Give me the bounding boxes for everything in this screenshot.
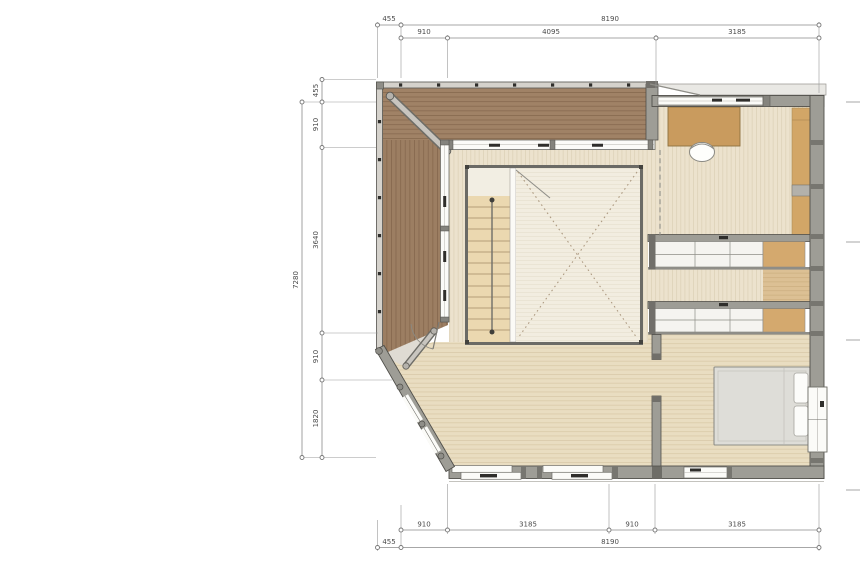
railing-post: [639, 340, 643, 344]
window-sash: [452, 466, 512, 473]
balcony-wall-top: [448, 140, 655, 150]
wall-post: [441, 317, 450, 322]
floor-plan-page: 455 8190 910 4095 3185 7280 455 910 3640…: [0, 0, 860, 573]
window-tick: [690, 469, 701, 472]
handrail-post: [490, 198, 495, 203]
partition-end-post: [652, 396, 661, 402]
deck-end-wall: [646, 84, 658, 140]
closet-corridor-floor-right: [763, 270, 810, 302]
window-tick: [820, 401, 824, 407]
dimension-label: 4095: [542, 28, 560, 36]
study-closet-block: [792, 185, 810, 196]
dimension-label: 910: [417, 521, 430, 529]
wall-tick: [719, 303, 728, 306]
railing-corner-post: [377, 82, 384, 89]
wall-post: [550, 140, 555, 150]
pillow: [794, 406, 808, 436]
dimensions-bottom: 910 3185 910 3185 455 8190: [376, 484, 822, 551]
desk: [668, 107, 740, 146]
dimension-label: 8190: [601, 15, 619, 23]
chair: [690, 143, 715, 162]
study-wall-closet: [792, 108, 810, 238]
closet-lower: [648, 302, 812, 335]
dimension-label: 8190: [601, 538, 619, 546]
dimension-label: 455: [382, 538, 395, 546]
pillow: [794, 373, 808, 403]
wall-joint: [438, 453, 444, 459]
stair-landing: [468, 168, 513, 196]
partition-end-post: [652, 354, 661, 360]
window-sash: [543, 466, 603, 473]
dimension-label: 455: [312, 84, 320, 97]
closet-wall: [648, 267, 812, 270]
railing-post: [465, 165, 469, 169]
closet-end-post: [649, 235, 656, 270]
closet-upper: [648, 235, 812, 270]
stairwell-inner-wall: [510, 168, 516, 342]
partition-wall: [652, 396, 661, 466]
bottom-wall: [449, 466, 824, 482]
balcony-wall-left: [441, 140, 450, 322]
window-tick: [480, 474, 497, 477]
closet-wood-panel: [763, 309, 805, 333]
dimension-label: 3185: [728, 28, 746, 36]
wall-post: [763, 96, 770, 107]
railing-post: [639, 165, 643, 169]
dimension-label: 3185: [728, 521, 746, 529]
dimension-label: 910: [312, 350, 320, 363]
closet-end-post: [649, 302, 656, 335]
closet-wall: [648, 332, 812, 335]
beam-joint: [386, 92, 394, 100]
dimension-label: 910: [417, 28, 430, 36]
dimension-label: 1820: [312, 410, 320, 428]
closet-wall: [648, 302, 812, 309]
window: [684, 467, 727, 478]
wall-post: [648, 140, 653, 150]
study-top-wall: [652, 96, 824, 107]
extension-lines: [378, 484, 820, 551]
dimension-label: 455: [382, 15, 395, 23]
deck-left-band: [382, 140, 448, 325]
closet-wood-panel: [763, 242, 805, 268]
closet-wall: [648, 235, 812, 242]
handrail-post: [490, 330, 495, 335]
tick-marks: [846, 102, 860, 490]
window: [543, 466, 612, 480]
wall-tick: [719, 236, 728, 239]
lower-left-room-floor: [388, 342, 662, 467]
bedroom-partition: [652, 335, 661, 467]
railing-post: [465, 340, 469, 344]
stairwell: [465, 165, 643, 344]
wall-junction: [652, 466, 662, 479]
dimension-label: 910: [625, 521, 638, 529]
window: [452, 466, 521, 480]
floor-plan-drawing: 455 8190 910 4095 3185 7280 455 910 3640…: [0, 0, 860, 573]
dimensions-top: 455 8190 910 4095 3185: [376, 15, 822, 93]
window-tick: [571, 474, 588, 477]
wall-joint: [376, 348, 383, 355]
right-wall: [808, 96, 827, 479]
dimension-label: 7280: [292, 271, 300, 289]
dimensions-right-ticks: [846, 102, 860, 490]
bed: [714, 367, 810, 445]
wall-post: [441, 140, 450, 145]
stairwell-void: [516, 168, 640, 342]
dimension-label: 3640: [312, 231, 320, 249]
wall-joint: [419, 421, 425, 427]
wall-joint: [397, 384, 403, 390]
dimension-label: 3185: [519, 521, 537, 529]
wall-post: [441, 226, 450, 231]
dimension-label: 910: [312, 118, 320, 131]
beam-joint: [403, 363, 409, 369]
